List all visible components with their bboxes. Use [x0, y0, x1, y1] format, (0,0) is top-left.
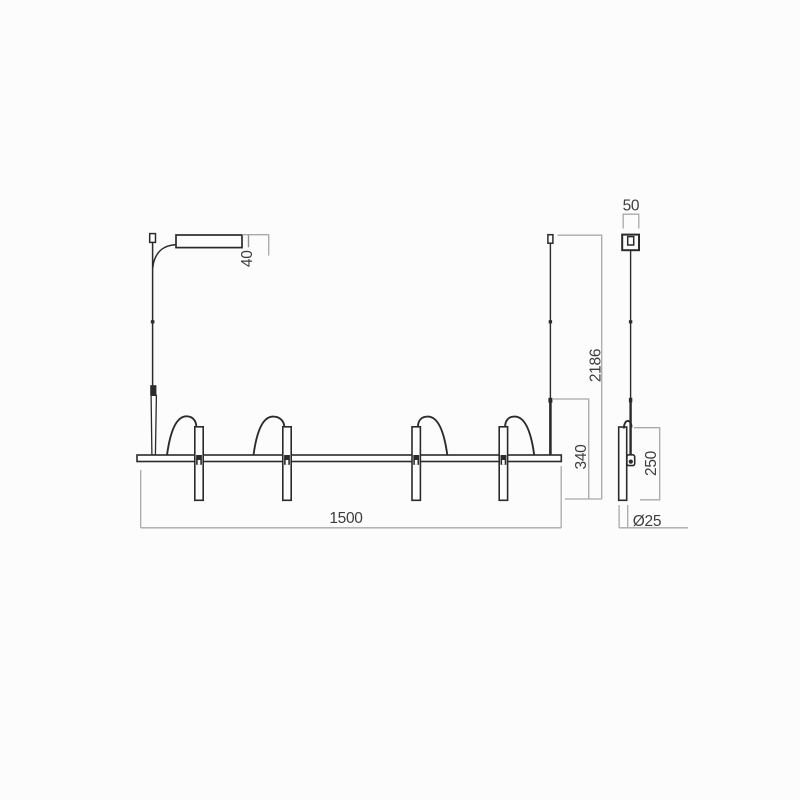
side-view — [619, 235, 639, 501]
dimension-label-40: 40 — [239, 250, 256, 267]
dimension-label-2186: 2186 — [588, 349, 605, 382]
dimension-canopy-width: 50 — [623, 198, 640, 229]
dimension-canopy-height: 40 — [239, 235, 269, 267]
power-cord-curve — [153, 245, 176, 268]
tube-clamp-1 — [196, 455, 202, 465]
cable-ferrule-left — [150, 385, 156, 395]
lamp-cable-arc-3 — [418, 417, 447, 455]
lamp-tube-side — [619, 427, 627, 500]
tube-clamp-2 — [284, 455, 290, 465]
dimension-label-1500: 1500 — [329, 510, 363, 527]
tube-clamp-4 — [501, 455, 507, 465]
cable-strain-relief-left — [151, 395, 156, 455]
driver-canopy-front — [176, 235, 242, 248]
dimension-label-340: 340 — [573, 444, 590, 470]
bar-cross-section-core — [629, 460, 633, 464]
ceiling-connector-left — [150, 234, 156, 243]
front-view — [137, 234, 561, 501]
lamp-cable-arc-2 — [254, 417, 285, 455]
dimension-label-d25: Ø25 — [633, 513, 661, 530]
pendant-lamp-dimension-drawing: 40 50 2186 340 250 1500 — [0, 0, 800, 800]
lamp-cable-arc-4 — [505, 417, 534, 455]
dimension-label-50: 50 — [623, 198, 640, 215]
dimension-label-250: 250 — [643, 450, 660, 476]
technical-drawing-page: 40 50 2186 340 250 1500 — [0, 0, 800, 800]
ceiling-connector-right — [548, 235, 553, 244]
canopy-side-cable-grip — [628, 237, 634, 245]
cable-ferrule-side — [629, 398, 632, 403]
lamp-cable-arc-1 — [167, 416, 196, 455]
dimension-rod-drop: 340 — [552, 399, 602, 499]
cable-ferrule-right — [548, 398, 552, 403]
dimension-tube-length: 250 — [634, 428, 660, 500]
tube-clamp-3 — [413, 455, 419, 465]
dimension-tube-diameter: Ø25 — [619, 505, 688, 530]
